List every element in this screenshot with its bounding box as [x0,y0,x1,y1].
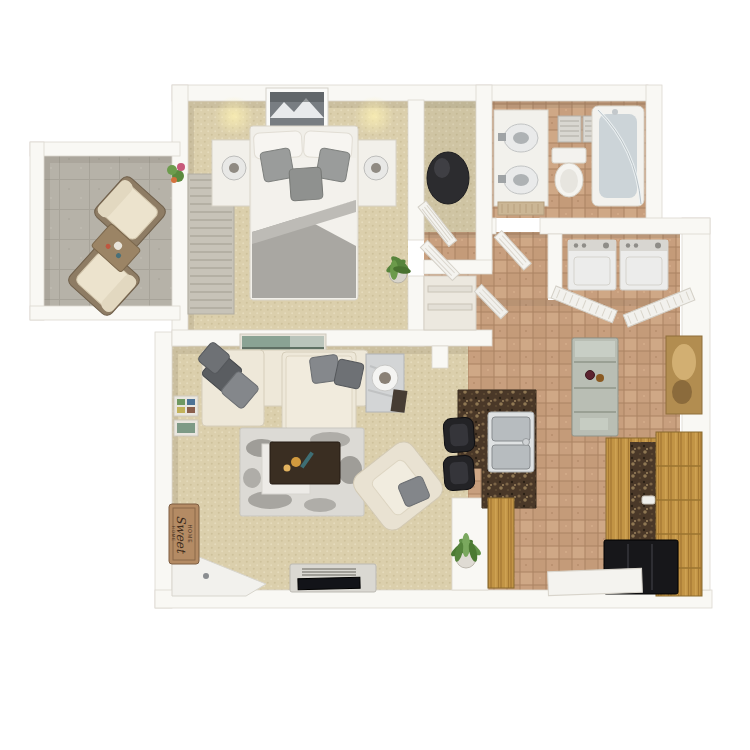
sign-line-3: HOME [171,526,176,542]
dryer [620,240,668,290]
tub-shower [592,106,644,206]
serving-cart [572,338,618,436]
wall-bedroom-right-a [408,100,424,240]
desk-item [203,573,209,579]
floorplan-canvas: HOME Sweet HOME [0,0,750,750]
wall-patio-top [30,142,180,156]
home-sweet-home-sign: HOME Sweet HOME [169,504,199,564]
cabinet-handle [642,496,655,504]
bar-wood-panel [488,498,514,588]
kitchen-sink [488,412,534,472]
decor-bowl [291,457,301,467]
wall-closet-bath-divider [476,85,492,270]
shelf [428,304,472,310]
shower-head [612,109,618,115]
nightstand-left [212,140,254,206]
tv-console [290,564,376,592]
wine-bottle [586,371,595,380]
sectional-sofa [197,341,368,434]
bar-stool-2 [443,455,475,491]
wall-patio-left [30,142,44,320]
bedroom-wall-art [266,88,328,130]
side-table [366,354,407,413]
kitchen-wall-art [666,336,702,414]
kitchen-floor-mat [548,568,643,595]
bath-mat [498,202,544,215]
linen-closet [424,276,476,330]
wall-bedroom-bottom [172,330,492,346]
floorplan-svg: HOME Sweet HOME [0,0,750,750]
double-sink-vanity [494,110,548,206]
shelf [428,286,472,292]
faucet [498,175,506,183]
wall-hall-stub [432,346,448,368]
granite-counter [630,442,656,542]
wine-bottle [596,374,604,382]
throw-pillow [334,359,365,390]
toilet [552,148,586,197]
wall-bathroom-right [646,85,662,232]
bar-stool-1 [443,417,475,453]
ceiling-light-glow [214,96,254,136]
tv [298,577,360,590]
queen-bed [250,126,358,300]
wall-bath-bottom-b [540,218,710,234]
washer [568,240,616,290]
ceiling-light-glow [354,96,394,136]
faucet [523,439,530,446]
gallery-frames [174,396,198,436]
wall-living-left [155,332,172,608]
bean-bag-chair [427,152,469,204]
nightstand-right [354,140,396,206]
faucet [498,133,506,141]
